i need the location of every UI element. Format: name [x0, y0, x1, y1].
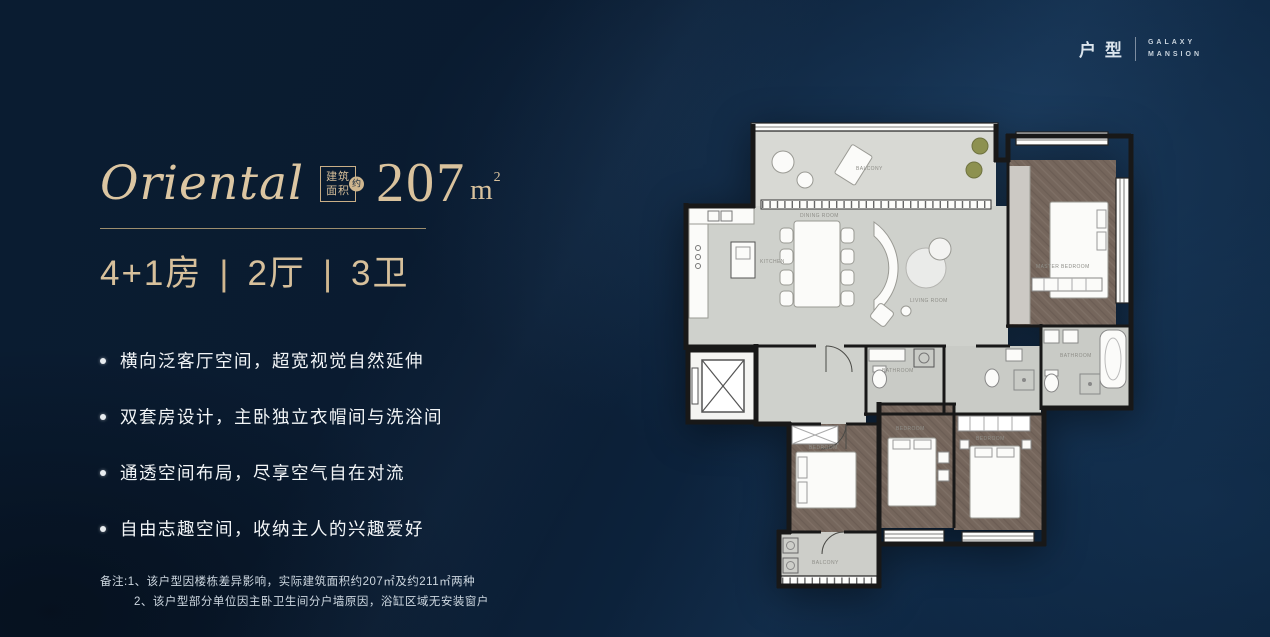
room-label: BALCONY	[812, 560, 839, 566]
room-label: BATHROOM	[1060, 353, 1092, 359]
spec-row: 4+1房|2厅|3卫	[100, 245, 580, 296]
chair	[780, 228, 793, 243]
wardrobe	[1032, 278, 1102, 291]
area-value: 207	[376, 155, 466, 211]
room-label: MASTER BEDROOM	[1036, 264, 1090, 270]
feature-text: 通透空间布局，尽享空气自在对流	[120, 460, 405, 485]
floorplan: BALCONY DINING ROOM KITCHEN LIVING ROOM …	[676, 118, 1136, 598]
elevator-door	[692, 368, 698, 404]
spec-separator: |	[219, 254, 230, 293]
feature-item: 横向泛客厅空间，超宽视觉自然延伸	[100, 348, 580, 373]
room-label: BEDROOM	[976, 436, 1005, 442]
chair	[841, 291, 854, 306]
vanity-sink	[1044, 330, 1059, 343]
layout-title: Oriental	[100, 160, 304, 207]
area-unit: m2	[470, 170, 501, 207]
walkin-closet	[1008, 166, 1030, 324]
brand-divider	[1135, 37, 1136, 61]
spec-halls: 2厅	[247, 254, 305, 293]
bullet-icon	[100, 414, 106, 420]
pillow	[1097, 210, 1106, 228]
balcony-table	[772, 151, 794, 173]
feature-item: 通透空间布局，尽享空气自在对流	[100, 460, 580, 485]
brand-logo: 户型 GALAXY MANSION	[1079, 36, 1202, 61]
plant-icon	[966, 162, 982, 178]
feature-text: 自由志趣空间，收纳主人的兴趣爱好	[120, 516, 424, 541]
brand-category: 户型	[1079, 36, 1131, 61]
feature-text: 横向泛客厅空间，超宽视觉自然延伸	[120, 348, 424, 373]
room-label: BATHROOM	[882, 368, 914, 374]
pillow	[1097, 232, 1106, 250]
toilet-icon	[1045, 374, 1059, 392]
divider-line	[100, 228, 426, 229]
stool	[901, 306, 911, 316]
nightstand	[960, 440, 969, 449]
toilet-icon	[985, 369, 999, 387]
foyer-room	[756, 346, 866, 426]
pillow	[997, 448, 1014, 457]
chair	[938, 470, 949, 481]
area-unit-m: m	[470, 174, 493, 206]
pillow	[798, 482, 807, 503]
vanity-sink	[869, 349, 905, 361]
balcony-table	[797, 172, 813, 188]
plant-icon	[972, 138, 988, 154]
wardrobe	[958, 416, 1030, 431]
kitchen-counter	[689, 224, 708, 318]
chair	[938, 452, 949, 463]
vanity-sink	[1063, 330, 1078, 343]
room-label: BEDROOM	[809, 445, 838, 451]
bullet-icon	[100, 358, 106, 364]
feature-item: 双套房设计，主卧独立衣帽间与洗浴间	[100, 404, 580, 429]
feature-list: 横向泛客厅空间，超宽视觉自然延伸 双套房设计，主卧独立衣帽间与洗浴间 通透空间布…	[100, 348, 580, 541]
feature-item: 自由志趣空间，收纳主人的兴趣爱好	[100, 516, 580, 541]
spec-separator: |	[323, 254, 334, 293]
chair	[780, 270, 793, 285]
area-badge-line1: 建筑	[326, 170, 350, 184]
bullet-icon	[100, 470, 106, 476]
bathtub-icon	[1100, 330, 1126, 388]
spec-baths: 3卫	[351, 254, 409, 293]
info-panel: Oriental 建筑 面积 约 207 m2 4+1房|2厅|3卫 横向泛客厅…	[100, 152, 580, 612]
area-approx-circle: 约	[349, 177, 364, 192]
spec-rooms: 4+1房	[100, 254, 202, 293]
brand-name: GALAXY MANSION	[1148, 37, 1202, 59]
nightstand	[1022, 440, 1031, 449]
room-label: DINING ROOM	[800, 213, 839, 219]
note-line-2: 2、该户型部分单位因主卧卫生间分户墙原因，浴缸区域无安装窗户	[100, 592, 580, 612]
dining-table	[794, 221, 840, 307]
pillow	[798, 457, 807, 478]
area-badge: 建筑 面积 约	[320, 166, 356, 202]
area-badge-line2: 面积	[326, 184, 350, 198]
room-label: BEDROOM	[896, 426, 925, 432]
bullet-icon	[100, 526, 106, 532]
pillow	[975, 448, 992, 457]
disclaimer-notes: 备注:1、该户型因楼栋差异影响，实际建筑面积约207㎡及约211㎡两种 2、该户…	[100, 572, 580, 612]
title-row: Oriental 建筑 面积 约 207 m2	[100, 152, 580, 214]
chair	[841, 228, 854, 243]
feature-text: 双套房设计，主卧独立衣帽间与洗浴间	[120, 404, 443, 429]
room-label: KITCHEN	[760, 259, 785, 265]
slide: 户型 GALAXY MANSION Oriental 建筑 面积 约 207 m…	[0, 0, 1270, 637]
chair	[780, 291, 793, 306]
note-line-1: 备注:1、该户型因楼栋差异影响，实际建筑面积约207㎡及约211㎡两种	[100, 572, 580, 592]
brand-name-top: GALAXY	[1148, 37, 1202, 48]
vanity-sink	[1006, 349, 1022, 361]
room-label: BALCONY	[856, 166, 883, 172]
brand-name-bottom: MANSION	[1148, 49, 1202, 60]
room-label: LIVING ROOM	[910, 298, 948, 304]
pillow	[893, 440, 910, 449]
chair	[841, 249, 854, 264]
armchair	[929, 238, 951, 260]
area-unit-exp: 2	[494, 170, 501, 185]
pillow	[914, 440, 931, 449]
chair	[841, 270, 854, 285]
